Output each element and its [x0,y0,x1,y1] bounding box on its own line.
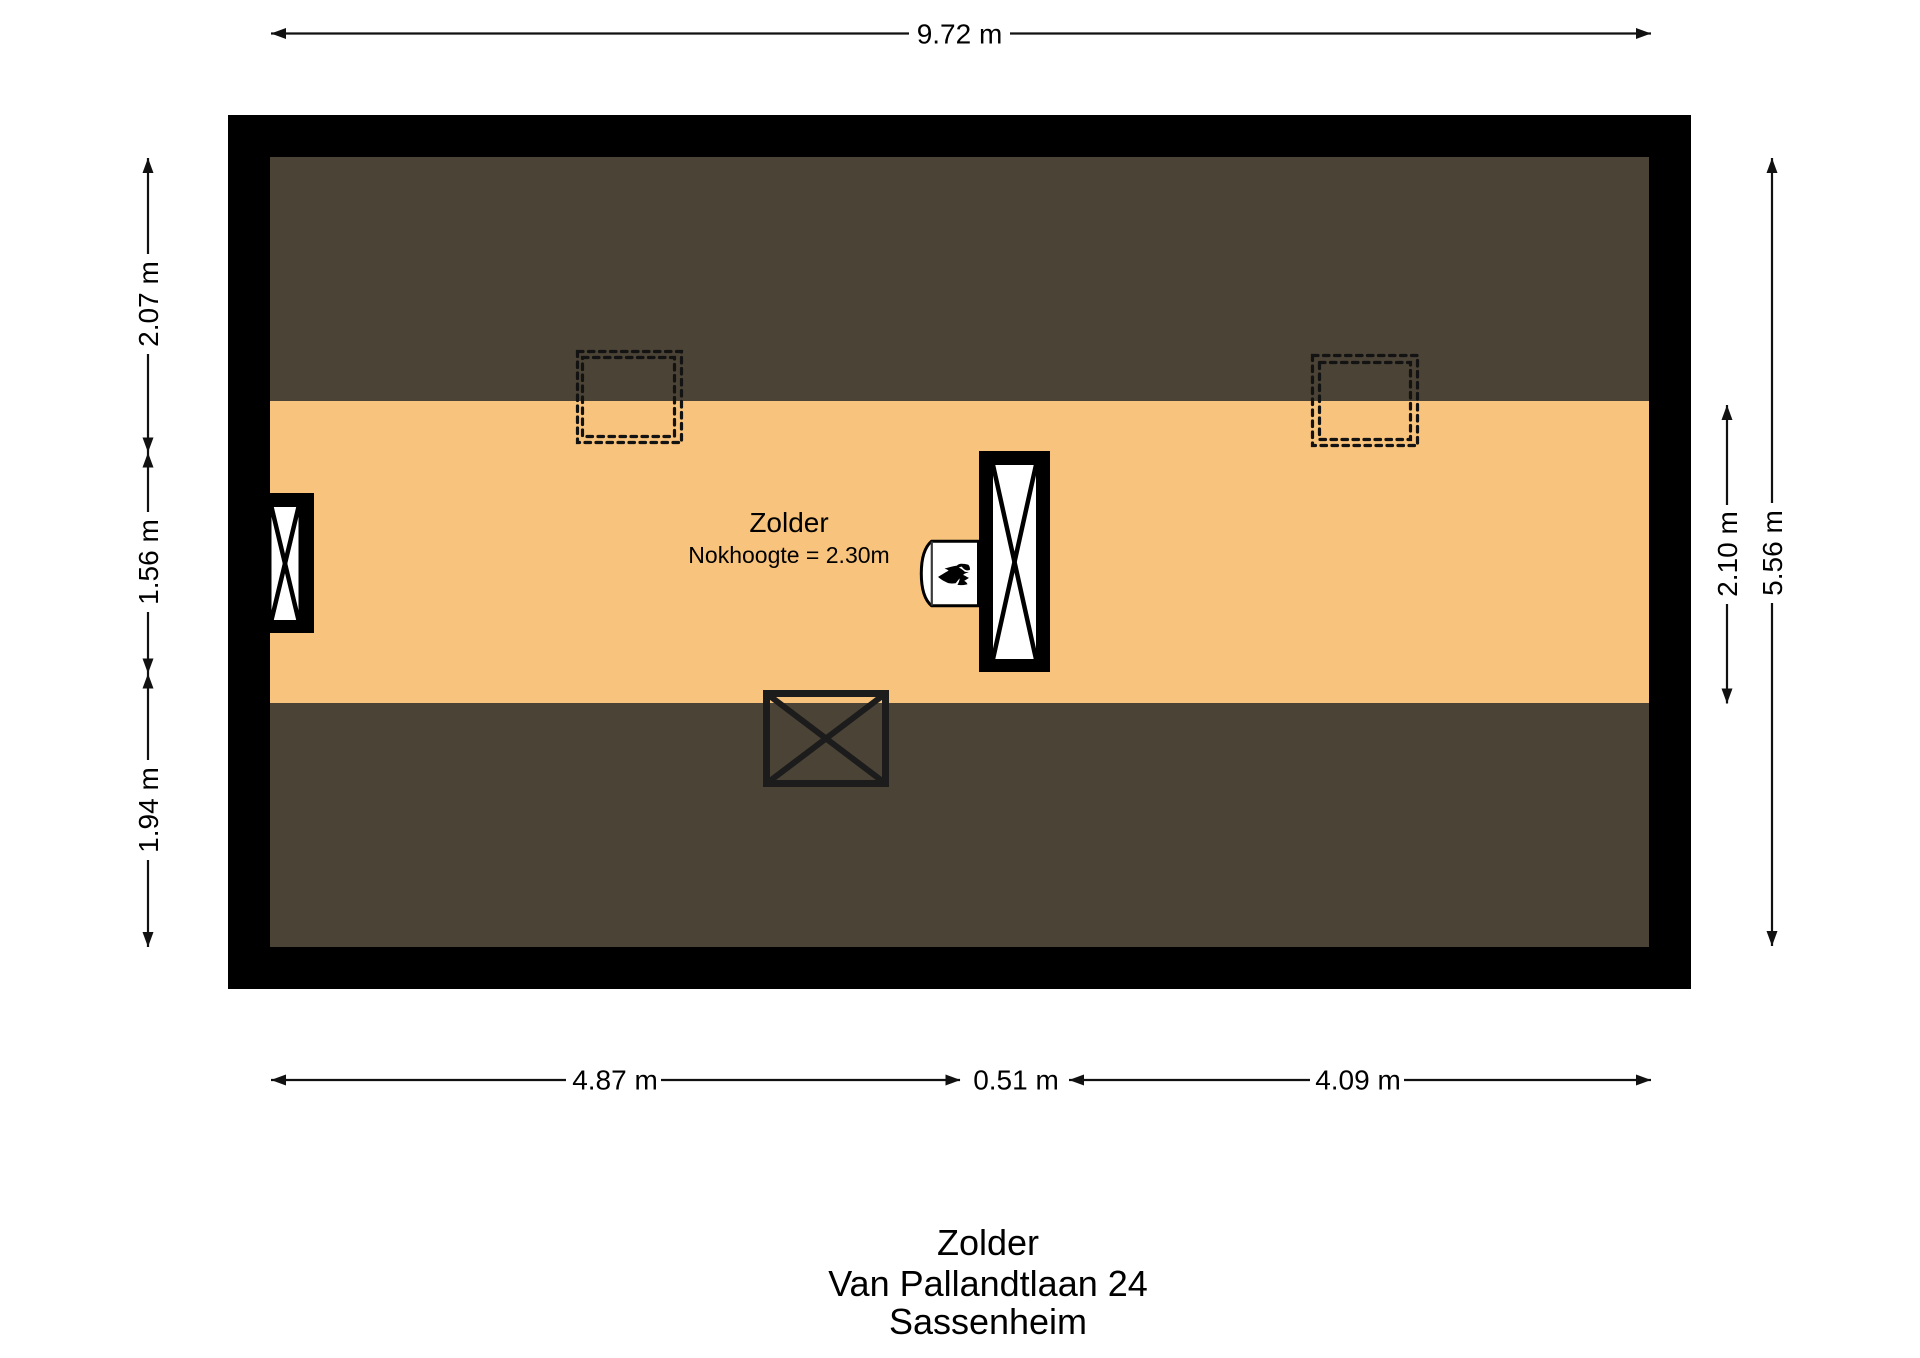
svg-text:Van Pallandtlaan 24: Van Pallandtlaan 24 [828,1263,1148,1304]
svg-text:4.87 m: 4.87 m [572,1065,658,1096]
svg-text:Sassenheim: Sassenheim [889,1301,1087,1342]
svg-text:1.56 m: 1.56 m [133,519,164,605]
svg-text:Zolder: Zolder [749,507,828,538]
svg-text:5.56 m: 5.56 m [1757,510,1788,596]
svg-text:1.94 m: 1.94 m [133,767,164,853]
svg-text:0.51 m: 0.51 m [973,1065,1059,1096]
svg-text:2.10 m: 2.10 m [1712,511,1743,597]
svg-text:2.07 m: 2.07 m [133,261,164,347]
svg-text:9.72 m: 9.72 m [917,19,1003,50]
svg-text:Zolder: Zolder [937,1222,1039,1263]
svg-text:4.09 m: 4.09 m [1315,1065,1401,1096]
svg-text:Nokhoogte = 2.30m: Nokhoogte = 2.30m [688,542,889,568]
